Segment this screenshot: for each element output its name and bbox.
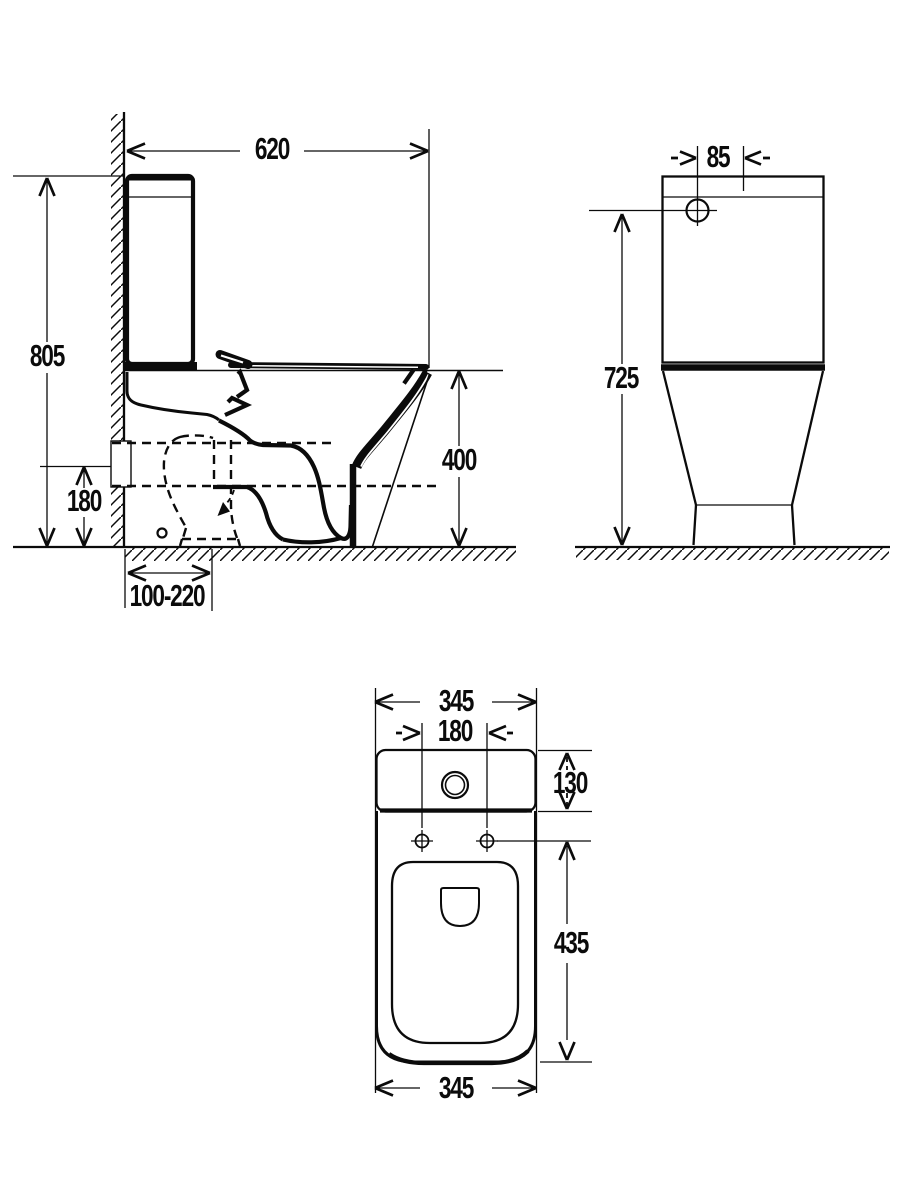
trap-dashed-outline	[164, 435, 213, 530]
seat-opening-ring	[392, 862, 518, 1043]
top-fixing-centres-dim-label: 180	[438, 717, 472, 747]
front-base-sides	[694, 505, 795, 545]
side-floor-hatch	[125, 548, 516, 561]
flow-arrow-head	[218, 502, 231, 516]
seat-hinge-tick	[404, 370, 414, 384]
pan-body-outline	[377, 811, 536, 1062]
technical-drawing-page: 620 805 400 180 100-220 85 725 345 180 1…	[0, 0, 900, 1200]
trap-dashed-foot	[180, 528, 240, 546]
front-floor-hatch	[576, 548, 889, 560]
bowl-inner-curve	[219, 421, 351, 539]
side-width-dim-label: 620	[255, 135, 289, 165]
top-cistern-depth-dim-label: 130	[553, 769, 587, 799]
seat-fixing-holes	[411, 830, 498, 852]
front-tank-outline	[663, 177, 824, 363]
fixing-hole-left-cross	[411, 830, 433, 852]
base-silhouette	[373, 374, 430, 547]
front-inlet-offset-dim-label: 85	[707, 143, 730, 173]
front-inlet-height-dim-label: 725	[604, 364, 638, 394]
front-view	[575, 146, 890, 560]
fixing-hole-right-cross	[476, 830, 498, 852]
pedestal-fixing-hole	[158, 529, 167, 538]
tank-outline	[127, 176, 193, 364]
top-cistern-outline	[377, 750, 536, 812]
pan-body-bottom-shadow	[389, 1051, 528, 1063]
front-bowl-left-taper	[663, 371, 696, 505]
side-outlet-distance-dim-label: 100-220	[130, 582, 205, 612]
top-pan-length-dim-label: 435	[554, 929, 588, 959]
top-width-dim-label: 345	[439, 687, 473, 717]
flush-outlet-shape	[441, 888, 479, 926]
side-outlet-height-dim-label: 180	[67, 487, 101, 517]
side-view	[13, 112, 516, 611]
side-height-dim-label: 805	[30, 342, 64, 372]
side-rim-height-dim-label: 400	[442, 446, 476, 476]
flow-arrow-dashed	[224, 490, 234, 506]
flush-button-inner	[446, 776, 465, 795]
front-bowl-right-taper	[792, 371, 823, 505]
rim-hook-2	[225, 398, 247, 415]
wall-outlet-socket	[111, 441, 131, 487]
bowl-back-shelf	[127, 372, 219, 420]
top-base-width-dim-label: 345	[439, 1074, 473, 1104]
bowl-back-curve	[357, 373, 428, 468]
top-view	[375, 688, 592, 1096]
rim-hook-1	[237, 372, 247, 397]
sump-bottom	[283, 538, 341, 542]
